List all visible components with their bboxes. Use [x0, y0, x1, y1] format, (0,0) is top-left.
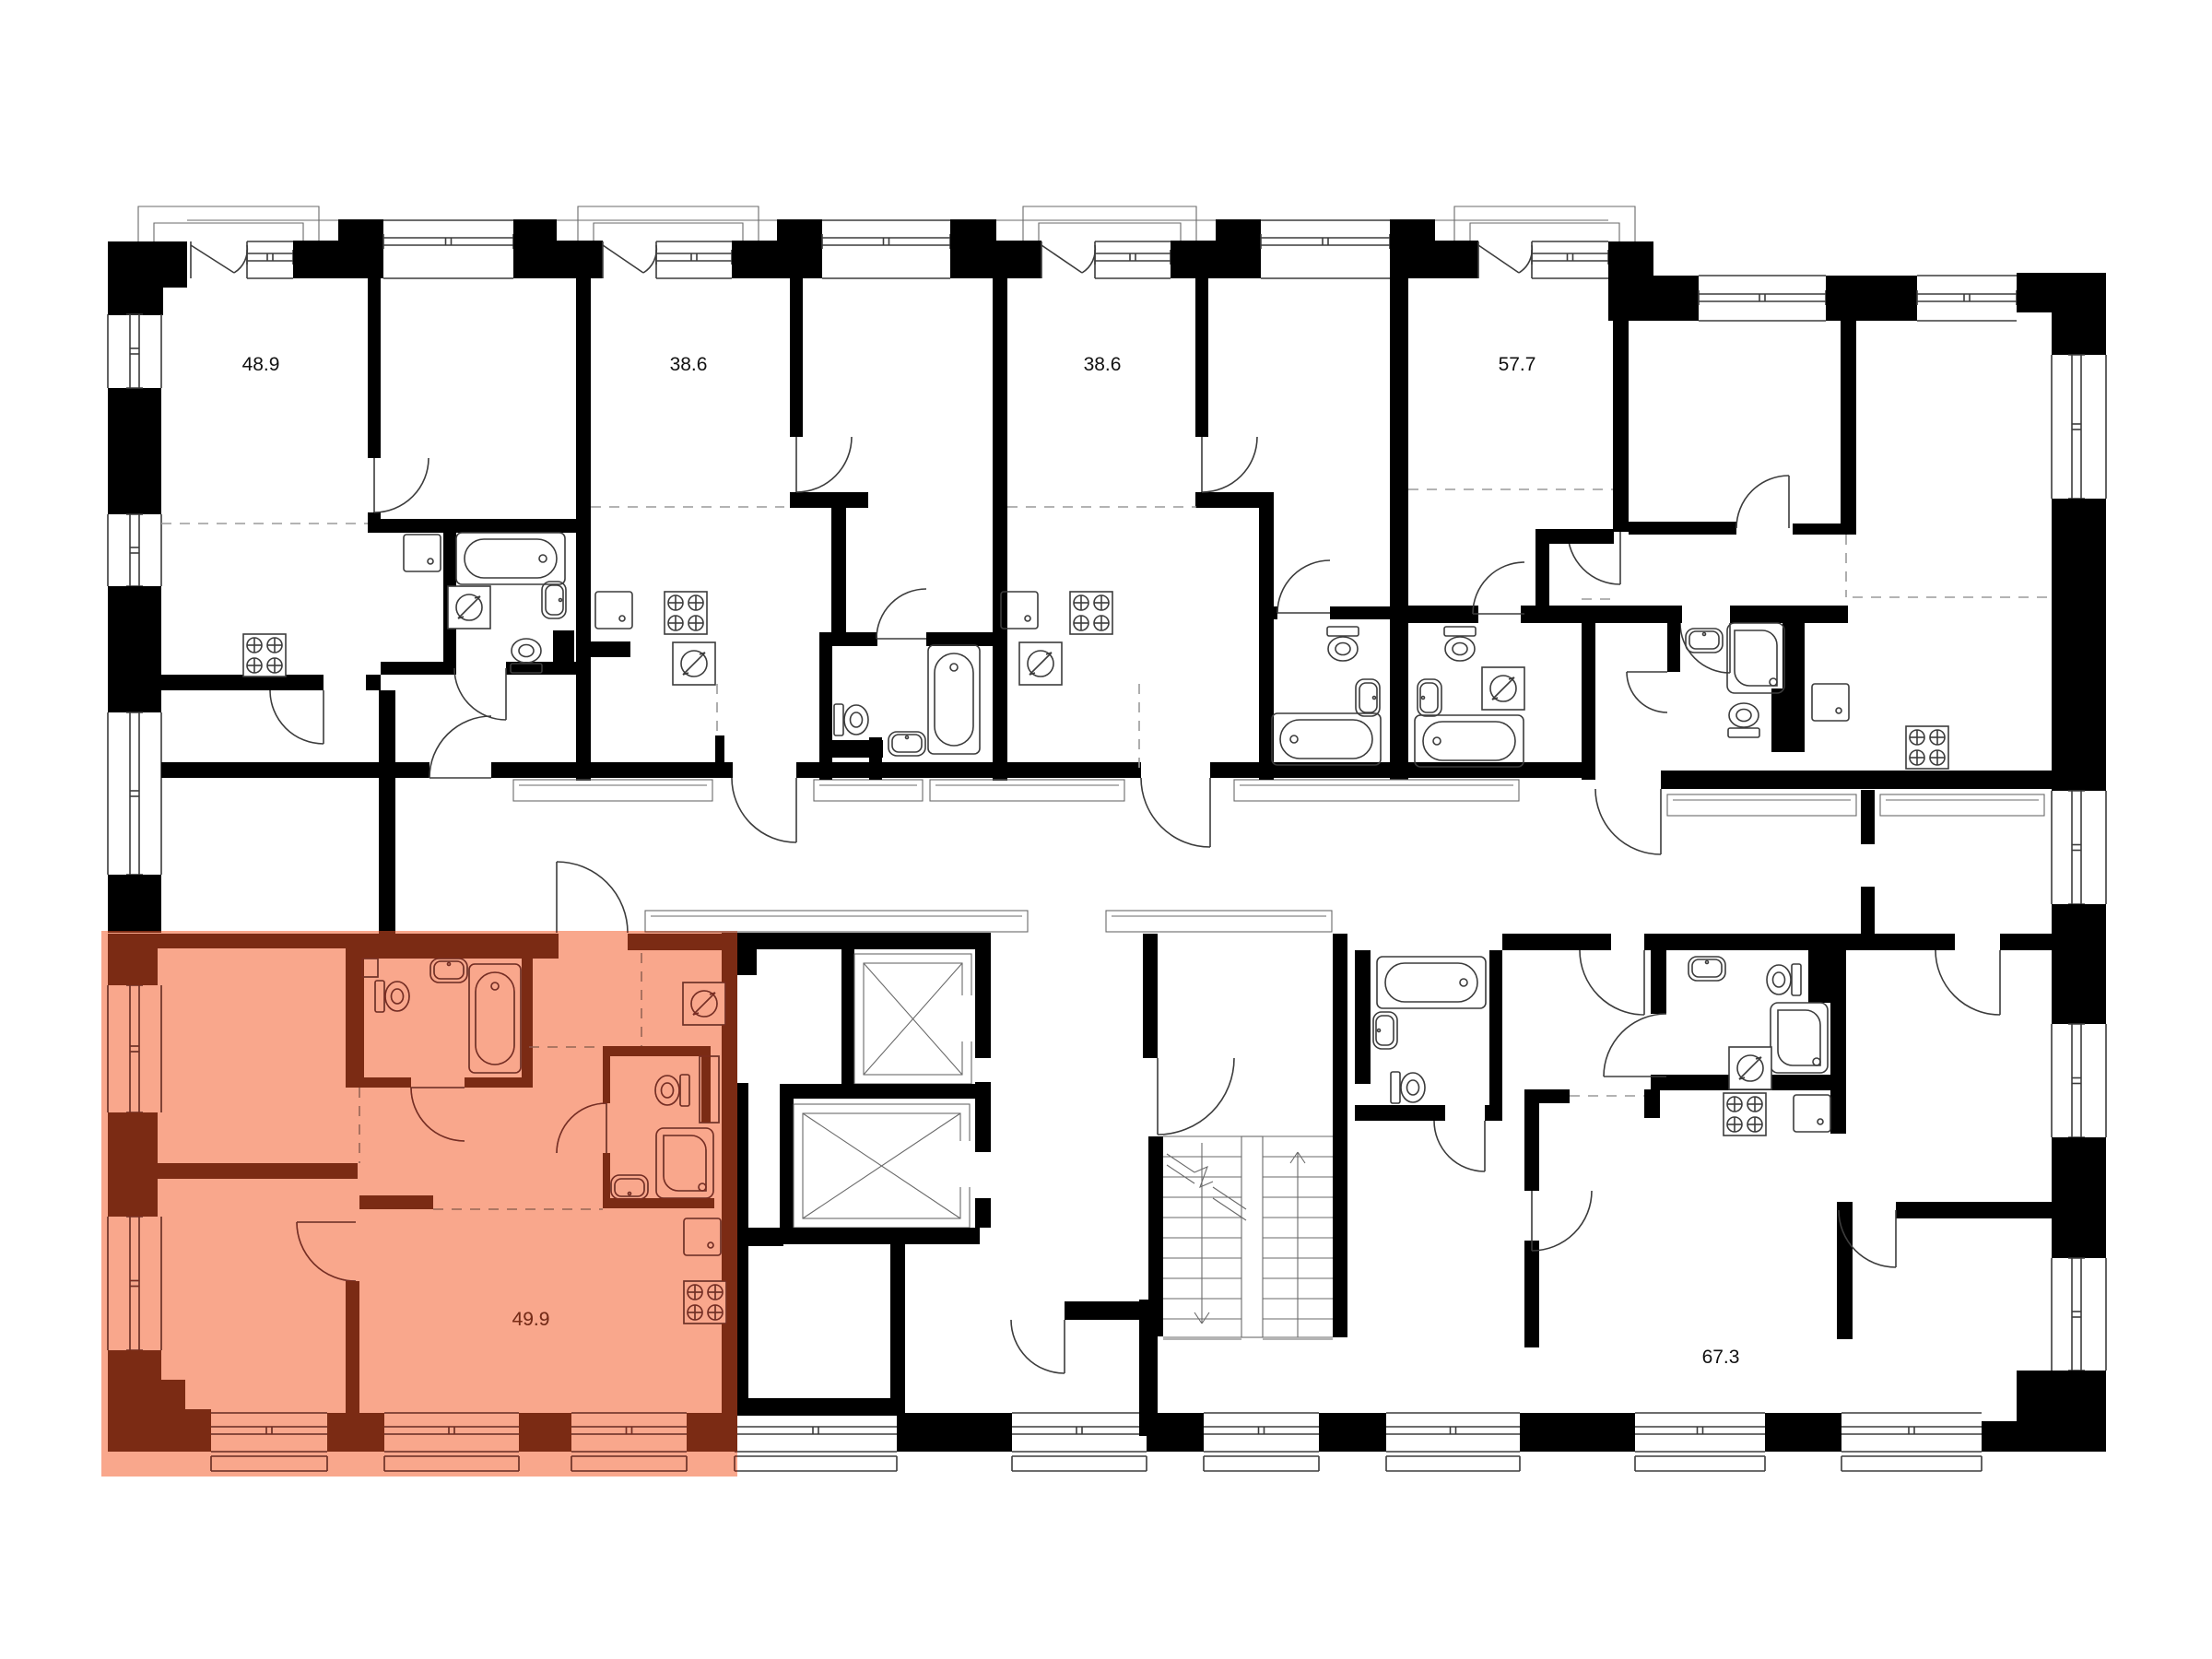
svg-text:67.3: 67.3 — [1702, 1347, 1740, 1368]
svg-text:38.6: 38.6 — [1084, 354, 1122, 375]
svg-text:38.6: 38.6 — [670, 354, 708, 375]
svg-text:57.7: 57.7 — [1499, 354, 1536, 375]
svg-text:48.9: 48.9 — [242, 354, 280, 375]
